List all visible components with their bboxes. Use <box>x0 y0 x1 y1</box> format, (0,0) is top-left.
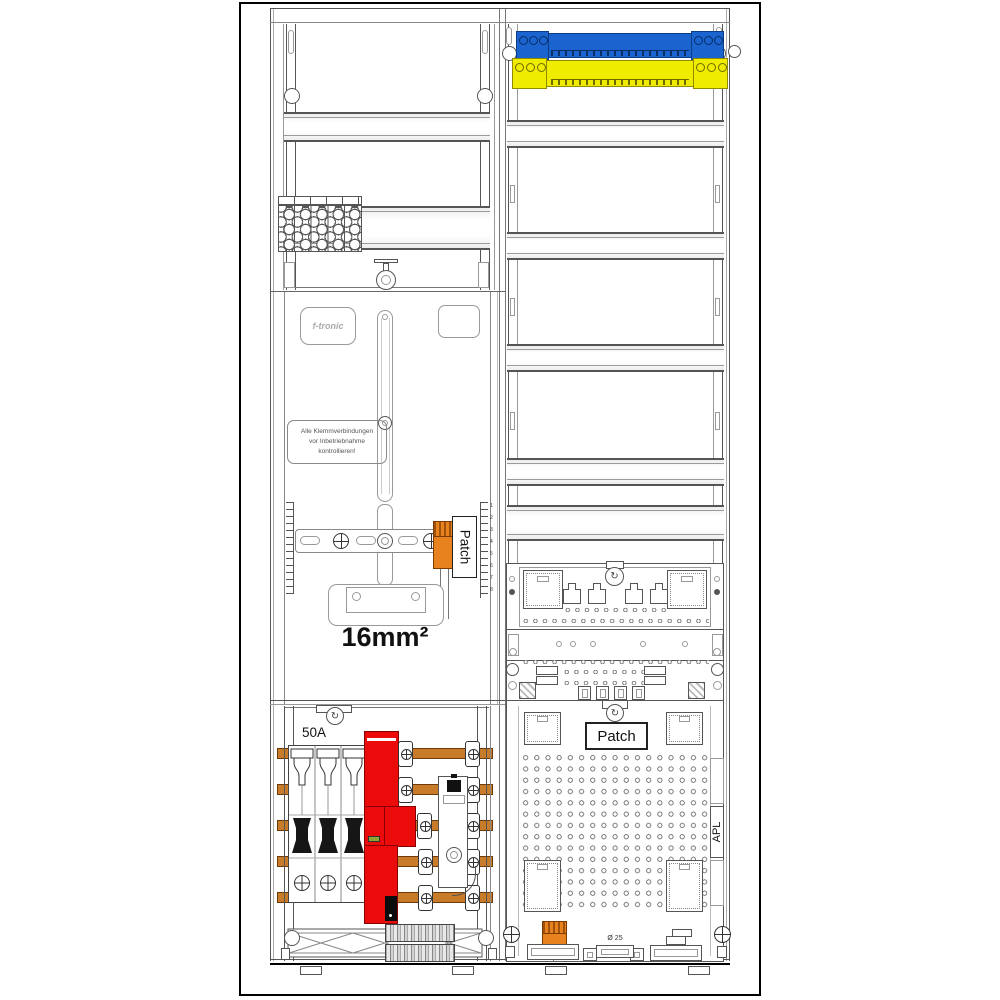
cabinet-left-wall <box>270 8 271 961</box>
cabinet-foot <box>545 966 567 975</box>
cable-clip-inner <box>636 689 642 698</box>
bottom-bracket-inner <box>531 948 575 956</box>
apl-cutout-tall <box>524 860 561 912</box>
rail-screw-icon <box>714 926 731 943</box>
rail-hole <box>478 930 494 946</box>
socket-module <box>523 570 563 609</box>
rail-screw-icon <box>503 926 520 943</box>
busbar-terminal-hole <box>696 63 705 72</box>
conduit-bracket-inner <box>601 949 629 955</box>
busbar-terminal-hole <box>515 63 524 72</box>
conduit-diameter-label: Ø 25 <box>598 934 632 943</box>
perforation-row <box>563 605 669 615</box>
meter-adjust-slot-line <box>389 318 390 494</box>
cable-clip <box>578 686 591 700</box>
column-divider-left <box>499 8 500 961</box>
clamp-screw-icon <box>468 821 479 832</box>
ruler-number: 2 <box>490 515 493 521</box>
wire-size-text: 16mm² <box>341 622 428 653</box>
fuse-rating-label: 50A <box>302 725 344 741</box>
sls-breaker-upper <box>364 731 399 809</box>
mounting-block <box>644 666 666 675</box>
side-clamp-hole <box>509 648 517 656</box>
cross-ring-screw-inner <box>381 537 389 545</box>
mounting-block <box>536 666 558 675</box>
fuse-rating-text: 50A <box>302 725 326 740</box>
bottom-bracket <box>650 945 702 961</box>
seal-screw-glyph: ↻ <box>611 708 619 719</box>
rj45-jack-icon <box>563 583 581 604</box>
section-divider <box>270 700 505 701</box>
meter-adjust-slot-line <box>381 318 382 494</box>
tray-corner-bracket <box>284 262 295 288</box>
device-slot <box>443 795 465 804</box>
ruler-number: 4 <box>490 539 493 545</box>
corner-post <box>519 682 536 699</box>
meter-adjust-slot <box>377 310 393 502</box>
rail-foot <box>488 948 497 960</box>
cabinet-foot <box>688 966 710 975</box>
cable-clip <box>596 686 609 700</box>
corner-post <box>688 682 705 699</box>
mounting-block <box>644 676 666 685</box>
cabinet-left-wall-inner <box>273 8 274 961</box>
ruler-number: 3 <box>490 527 493 533</box>
warning-line: kontrollieren! <box>301 447 373 457</box>
meter-panel-right-edge <box>490 292 491 704</box>
cabinet-right-wall-inner <box>726 8 727 961</box>
busbar-terminal-hole <box>707 63 716 72</box>
meter-ruler-left <box>286 502 294 594</box>
rail-hole <box>284 88 300 104</box>
panel-hole <box>570 641 576 647</box>
busbar-terminal-hole <box>694 36 703 45</box>
rail-slot <box>510 185 515 203</box>
panel-hole <box>509 576 515 582</box>
clamp-screw-icon <box>401 749 412 760</box>
busbar-clamp <box>418 849 433 875</box>
clamp-screw-icon <box>468 749 479 760</box>
side-clamp-hole <box>713 648 721 656</box>
rail-foot <box>717 946 727 958</box>
ruler-number: 8 <box>490 587 493 593</box>
plate-screw <box>411 592 420 601</box>
rj45-body <box>588 589 606 604</box>
din-rail-band <box>507 458 724 486</box>
nh-fuse-switch-3pole <box>288 745 368 903</box>
busbar-terminal-hole <box>704 36 713 45</box>
terminal-strip-row <box>385 924 455 942</box>
cabinet-foot <box>452 966 474 975</box>
apl-cutout <box>666 712 703 745</box>
dist-panel-top <box>284 707 489 708</box>
seal-screw-glyph: ↻ <box>331 711 339 722</box>
panel-hole <box>714 576 720 582</box>
terminal-wire <box>448 569 449 619</box>
perforation-row <box>521 616 709 626</box>
cable-clip-inner <box>582 689 588 698</box>
rj45-jack-icon <box>625 583 643 604</box>
apl-cutout-tall <box>666 860 703 912</box>
busbar-yellow-teeth <box>551 79 689 85</box>
cabinet-top-line-inner <box>270 22 730 23</box>
rail-segment <box>710 860 724 906</box>
socket-slot <box>537 576 549 582</box>
apl-label-tab: APL <box>710 806 724 858</box>
plate-screw <box>352 592 361 601</box>
meter-panel-left-edge <box>284 292 285 704</box>
patch-label-text: Patch <box>597 728 635 745</box>
din-rail-band <box>507 232 724 260</box>
rail-oval-slot <box>356 536 376 545</box>
breaker-indicator-led <box>368 836 380 842</box>
din-rail-band <box>284 112 490 142</box>
busbar-terminal-hole <box>526 63 535 72</box>
rj45-body <box>625 589 643 604</box>
rail-hole <box>711 663 724 676</box>
seal-screw-icon: ↻ <box>326 707 344 725</box>
slot-hole <box>382 314 388 320</box>
socket-slot <box>681 576 693 582</box>
rail-slot <box>482 30 488 54</box>
busbar-clamp <box>398 777 413 803</box>
apl-inner-edge <box>518 706 519 956</box>
rj45-body <box>650 589 668 604</box>
cable-clip <box>614 686 627 700</box>
panel-hole <box>682 641 688 647</box>
bottom-foot-inner <box>587 952 593 958</box>
din-rail-band <box>507 344 724 372</box>
conduit-diameter-text: Ø 25 <box>607 935 622 942</box>
busbar-terminal-hole <box>529 36 538 45</box>
busbar-terminal-hole <box>537 63 546 72</box>
din-rail-band-wide <box>507 505 724 541</box>
panel-rivet <box>509 589 515 595</box>
cutout-slot <box>537 864 548 870</box>
breaker-lever-dot <box>389 914 392 917</box>
rail-slot <box>715 185 720 203</box>
terminal-block-tabs <box>278 196 362 205</box>
rj45-notch <box>593 583 601 590</box>
patch-label-vertical: Patch <box>452 516 477 578</box>
top-panel-rail-line <box>494 24 495 290</box>
rail-slot <box>510 412 515 430</box>
brand-logo-text: f-tronic <box>313 321 344 331</box>
section-divider <box>270 291 505 292</box>
rail-hole <box>506 663 519 676</box>
seal-screw-icon: ↻ <box>605 567 624 586</box>
rail-oval-slot <box>300 536 320 545</box>
busbar-clamp <box>418 885 433 911</box>
apl-label-text: APL <box>711 822 723 843</box>
rail-segment <box>710 758 724 804</box>
panel-hole <box>556 641 562 647</box>
wall-hole <box>728 45 741 58</box>
wire-size-label: 16mm² <box>320 620 450 654</box>
rail-slot <box>715 412 720 430</box>
rj45-jack-icon <box>650 583 668 604</box>
meter-cabinet-wiring-diagram: f-tronic Alle Klemmverbindungen vor Inbe… <box>0 0 1000 1000</box>
clamp-screw-icon <box>420 821 431 832</box>
patch-label-text: Patch <box>457 530 472 565</box>
breaker-top-line <box>367 738 396 741</box>
terminal-strip-row <box>385 944 455 962</box>
clamp-screw-icon <box>468 893 479 904</box>
panel-rivet <box>714 589 720 595</box>
device-screw-inner <box>450 851 458 859</box>
rj45-notch <box>568 583 576 590</box>
cutout-slot <box>679 864 690 870</box>
rail-oval-slot <box>398 536 418 545</box>
panel-hole <box>590 641 596 647</box>
cabinet-top-line <box>270 8 730 9</box>
cutout-slot <box>679 716 690 722</box>
device-cap <box>447 780 461 792</box>
breaker-lever-slot <box>385 896 397 921</box>
ruler-number: 6 <box>490 563 493 569</box>
bottom-foot <box>583 948 597 961</box>
busbar-clamp <box>398 741 413 767</box>
ruler-number: 1 <box>490 503 493 509</box>
clamp-screw-icon <box>401 785 412 796</box>
din-rail-band <box>507 120 724 148</box>
orange-terminal-ribs <box>543 922 566 934</box>
rail-hole <box>284 930 300 946</box>
rail-hole <box>477 88 493 104</box>
brand-logo: f-tronic <box>300 307 356 345</box>
cabinet-right-wall <box>729 8 730 961</box>
warning-line: vor Inbetriebnahme <box>301 437 373 447</box>
rail-slot <box>510 298 515 316</box>
warning-label: Alle Klemmverbindungen vor Inbetriebnahm… <box>287 420 387 464</box>
busbar-blue-teeth <box>551 50 689 56</box>
rail-hole <box>508 681 517 690</box>
mounting-block <box>536 676 558 685</box>
rail-slot <box>506 27 512 45</box>
panel-hole <box>640 641 646 647</box>
conduit-bracket <box>596 945 634 958</box>
rail-slot <box>288 30 294 54</box>
cable-clip-inner <box>618 689 624 698</box>
busbar-clamp <box>465 741 480 767</box>
cable-clip-inner <box>600 689 606 698</box>
seal-screw-icon: ↻ <box>606 704 624 722</box>
socket-module <box>667 570 707 609</box>
rj45-notch <box>630 583 638 590</box>
busbar-terminal-hole <box>539 36 548 45</box>
busbar-terminal-hole <box>519 36 528 45</box>
busbar-terminal-hole <box>718 63 727 72</box>
step-bracket-bottom <box>666 936 686 945</box>
warning-text: Alle Klemmverbindungen vor Inbetriebnahm… <box>301 427 373 457</box>
cable-clip <box>632 686 645 700</box>
patch-label-box: Patch <box>585 722 648 750</box>
terminal-block-dividers <box>278 205 362 252</box>
rail-slot <box>715 298 720 316</box>
section-divider-inner <box>270 704 505 705</box>
bottom-bracket <box>527 944 579 960</box>
dist-right-edge <box>490 706 491 961</box>
rail-hole <box>713 681 722 690</box>
bottom-foot-inner <box>634 952 640 958</box>
meter-ruler-right <box>480 502 488 598</box>
rail-foot <box>281 948 290 960</box>
cross-screw-icon <box>333 533 349 549</box>
rail-foot <box>505 946 515 958</box>
seal-screw-glyph: ↻ <box>610 571 618 582</box>
meter-panel-right-edge-inner <box>497 292 498 704</box>
rj45-notch <box>655 583 663 590</box>
rj45-jack-icon <box>588 583 606 604</box>
ruler-number: 5 <box>490 551 493 557</box>
ruler-number: 7 <box>490 575 493 581</box>
tray-corner-bracket <box>478 262 489 288</box>
seal-screw-inner <box>381 275 391 285</box>
device-cap-stem <box>451 774 457 778</box>
clamp-screw-icon <box>468 785 479 796</box>
busbar-clamp <box>417 813 432 839</box>
bottom-bracket-inner <box>654 949 698 957</box>
clamp-screw-icon <box>421 893 432 904</box>
breaker-middle-divider <box>384 807 385 846</box>
meter-window <box>438 305 480 338</box>
top-panel-right-rail <box>480 24 490 290</box>
apl-cutout <box>524 712 561 745</box>
busbar-terminal-hole <box>714 36 723 45</box>
clamp-screw-icon <box>421 857 432 868</box>
cutout-slot <box>537 716 548 722</box>
warning-line: Alle Klemmverbindungen <box>301 427 373 437</box>
rj45-body <box>563 589 581 604</box>
cabinet-foot <box>300 966 322 975</box>
